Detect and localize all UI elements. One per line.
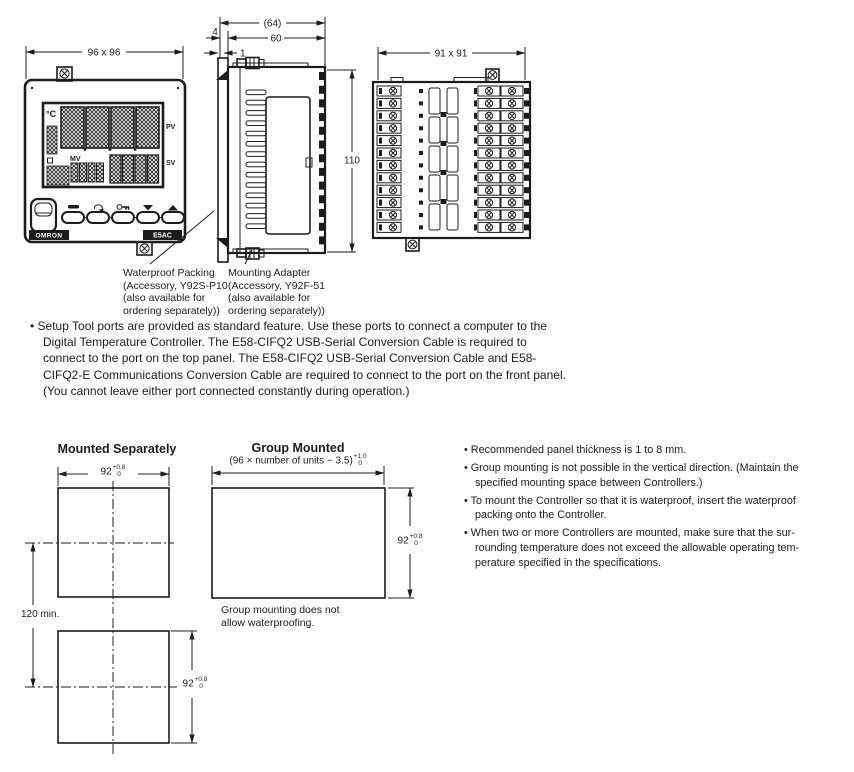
back-size-label: 91 x 91: [435, 49, 468, 60]
panel-cutout-drawing: [0, 430, 460, 772]
side-door: [266, 97, 310, 234]
side-flange-label: 4: [212, 27, 218, 38]
mounting-clamp-bottom: [233, 248, 308, 259]
center-slot-strips: [421, 88, 458, 231]
side-height-label: 110: [344, 156, 360, 167]
status-indicator-block: [47, 166, 69, 185]
note-item: Recommended panel thickness is 1 to 8 mm…: [464, 443, 854, 458]
pv-digits: [61, 107, 159, 151]
datasheet-dimensions-page: 96 x 96 °C: [0, 0, 854, 772]
model-badge-text: E5AC: [153, 233, 172, 240]
setup-port-cover: [31, 199, 56, 232]
group-height-dim: 92+0.80: [396, 534, 425, 548]
back-view-drawing: 91 x 91: [373, 47, 530, 251]
alarm-indicator-block: [47, 126, 57, 154]
up-key-button: [162, 212, 184, 223]
level-key-icon: [68, 205, 79, 209]
note-item: Group mounting is not possible in the ve…: [464, 461, 854, 490]
front-view-drawing: 96 x 96 °C: [25, 46, 185, 255]
down-key-button: [137, 212, 159, 223]
bottom-screw-icon: [137, 242, 152, 255]
group-mounting-caption: Group mounting does not allow waterproof…: [221, 604, 340, 630]
side-overall-depth-label: (64): [264, 19, 282, 30]
brand-logo-text: OMRON: [36, 233, 63, 240]
side-panel-label: 1: [240, 49, 246, 60]
mode-key-button: [87, 212, 109, 223]
front-size-label: 96 x 96: [88, 48, 121, 59]
setup-tool-note: Setup Tool ports are provided as standar…: [30, 318, 683, 399]
sv-digits: [110, 155, 159, 183]
side-body-depth-label: 60: [270, 34, 282, 45]
shift-key-button: [112, 212, 134, 223]
sv-label: SV: [166, 160, 176, 167]
group-mounted-title: Group Mounted: [251, 441, 344, 455]
group-cutout-rect: [212, 488, 385, 598]
spacing-dim-label: 120 min.: [19, 609, 61, 620]
waterproof-packing-callout: Waterproof Packing (Accessory, Y92S-P10 …: [123, 267, 228, 317]
temp-unit-indicator: °C: [46, 109, 57, 119]
group-width-formula: (96 × number of units − 3.5)+1.00: [227, 454, 368, 468]
mounting-adapter-callout: Mounting Adapter (Accessory, Y92F-51 (al…: [228, 267, 325, 317]
level-key-button: [62, 212, 84, 223]
mv-bar-digits: [71, 163, 104, 182]
separate-height-dim: 92+0.80: [181, 677, 210, 691]
side-view-drawing: (64) 60 4 1: [150, 17, 360, 264]
down-key-icon: [143, 205, 153, 211]
shift-key-icon: [117, 205, 129, 210]
back-bottom-screw-icon: [406, 238, 419, 251]
note-item: When two or more Controllers are mounted…: [464, 526, 854, 570]
terminal-block: [377, 86, 529, 232]
separate-width-dim: 92+0.80: [99, 465, 128, 479]
door-latch: [306, 158, 312, 167]
mv-label: MV: [70, 156, 81, 163]
note-item: To mount the Controller so that it is wa…: [464, 494, 854, 523]
mounted-separately-title: Mounted Separately: [58, 442, 177, 456]
pv-label: PV: [166, 124, 176, 131]
group-mounted-drawing: [212, 466, 414, 598]
mounting-clamp-top: [233, 58, 308, 69]
vent-slots: [246, 90, 266, 229]
front-flange: [218, 58, 228, 262]
up-key-icon: [168, 205, 178, 211]
mounting-notes-list: Recommended panel thickness is 1 to 8 mm…: [464, 443, 854, 574]
device-views-drawing: 96 x 96 °C: [0, 0, 854, 268]
